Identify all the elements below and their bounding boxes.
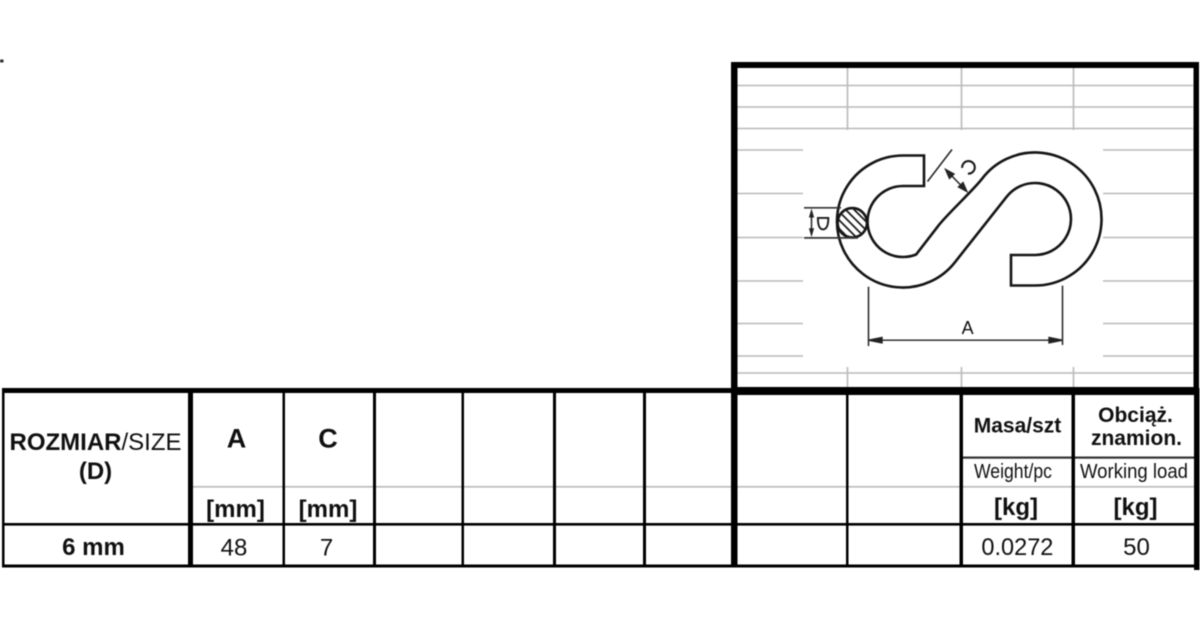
svg-text:Obciąż.: Obciąż. xyxy=(1098,404,1173,427)
svg-text:ROZMIAR/SIZE: ROZMIAR/SIZE xyxy=(10,429,182,456)
svg-text:0.0272: 0.0272 xyxy=(981,534,1053,561)
svg-text:Masa/szt: Masa/szt xyxy=(974,415,1062,438)
svg-text:A: A xyxy=(962,318,974,338)
svg-text:(D): (D) xyxy=(79,458,112,485)
svg-text:[kg]: [kg] xyxy=(1114,494,1158,521)
svg-text:[kg]: [kg] xyxy=(994,494,1038,521)
svg-text:7: 7 xyxy=(320,535,333,562)
svg-text:Weight/pc: Weight/pc xyxy=(974,461,1052,483)
svg-text:znamion.: znamion. xyxy=(1091,427,1182,450)
svg-text:[mm]: [mm] xyxy=(299,496,358,523)
svg-text:A: A xyxy=(227,424,247,454)
svg-text:Working load: Working load xyxy=(1080,461,1188,483)
svg-text:50: 50 xyxy=(1123,534,1150,561)
svg-text:48: 48 xyxy=(221,535,248,562)
svg-text:6 mm: 6 mm xyxy=(62,534,125,561)
svg-text:[mm]: [mm] xyxy=(206,496,265,523)
svg-text:C: C xyxy=(318,424,338,454)
